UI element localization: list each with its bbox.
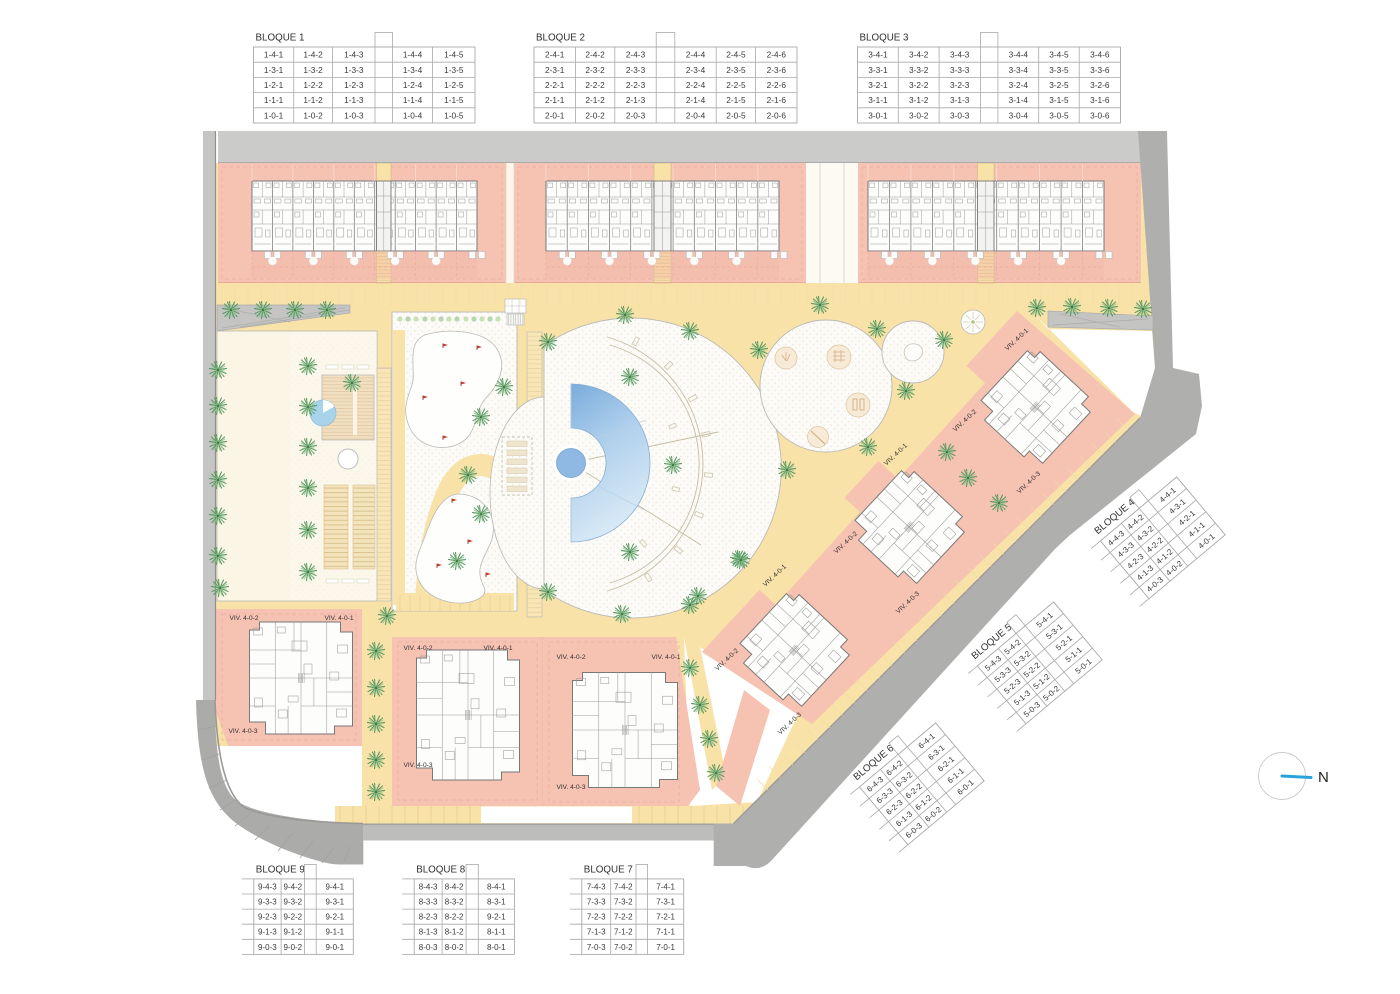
- svg-text:1-3-3: 1-3-3: [344, 65, 364, 75]
- svg-text:1-2-4: 1-2-4: [403, 80, 423, 90]
- svg-text:8-3-1: 8-3-1: [487, 898, 506, 907]
- svg-text:9-2-3: 9-2-3: [258, 913, 277, 922]
- svg-text:VIV. 4-0-1: VIV. 4-0-1: [651, 654, 680, 661]
- svg-text:VIV. 4-0-2: VIV. 4-0-2: [556, 654, 585, 661]
- svg-text:8-4-2: 8-4-2: [445, 882, 464, 891]
- svg-text:3-1-5: 3-1-5: [1049, 95, 1069, 105]
- svg-text:1-1-1: 1-1-1: [264, 95, 284, 105]
- svg-text:VIV. 4-0-2: VIV. 4-0-2: [403, 645, 432, 652]
- svg-text:7-1-1: 7-1-1: [656, 928, 675, 937]
- svg-text:3-1-4: 3-1-4: [1009, 95, 1029, 105]
- svg-text:1-0-5: 1-0-5: [444, 110, 464, 120]
- svg-text:7-4-3: 7-4-3: [587, 882, 606, 891]
- svg-text:3-0-5: 3-0-5: [1049, 110, 1069, 120]
- svg-text:2-2-4: 2-2-4: [686, 80, 706, 90]
- svg-text:1-4-3: 1-4-3: [344, 50, 364, 60]
- svg-text:N: N: [1318, 769, 1329, 786]
- svg-text:3-3-6: 3-3-6: [1090, 65, 1110, 75]
- svg-text:2-1-5: 2-1-5: [726, 95, 746, 105]
- svg-text:VIV. 4-0-1: VIV. 4-0-1: [483, 645, 512, 652]
- svg-text:3-3-3: 3-3-3: [950, 65, 970, 75]
- svg-text:8-2-3: 8-2-3: [419, 913, 438, 922]
- svg-text:2-4-3: 2-4-3: [626, 50, 646, 60]
- svg-text:2-2-3: 2-2-3: [626, 80, 646, 90]
- svg-text:1-2-5: 1-2-5: [444, 80, 464, 90]
- svg-text:9-2-2: 9-2-2: [283, 913, 302, 922]
- svg-text:7-2-3: 7-2-3: [587, 913, 606, 922]
- svg-text:3-0-2: 3-0-2: [909, 110, 929, 120]
- svg-text:7-0-3: 7-0-3: [587, 943, 606, 952]
- svg-text:1-3-5: 1-3-5: [444, 65, 464, 75]
- svg-text:2-2-1: 2-2-1: [545, 80, 565, 90]
- svg-text:8-4-1: 8-4-1: [487, 882, 506, 891]
- svg-text:BLOQUE 2: BLOQUE 2: [536, 33, 585, 44]
- svg-text:1-0-3: 1-0-3: [344, 110, 364, 120]
- svg-text:8-0-3: 8-0-3: [419, 943, 438, 952]
- svg-text:3-3-4: 3-3-4: [1009, 65, 1029, 75]
- svg-text:3-3-1: 3-3-1: [868, 65, 888, 75]
- svg-text:2-1-6: 2-1-6: [767, 95, 787, 105]
- svg-text:2-4-6: 2-4-6: [767, 50, 787, 60]
- svg-text:2-1-4: 2-1-4: [686, 95, 706, 105]
- svg-text:2-0-6: 2-0-6: [767, 110, 787, 120]
- svg-text:3-3-2: 3-3-2: [909, 65, 929, 75]
- svg-text:BLOQUE 7: BLOQUE 7: [584, 864, 633, 875]
- svg-text:2-1-1: 2-1-1: [545, 95, 565, 105]
- svg-text:9-2-1: 9-2-1: [325, 913, 344, 922]
- svg-text:2-2-2: 2-2-2: [585, 80, 605, 90]
- svg-text:9-4-1: 9-4-1: [325, 882, 344, 891]
- svg-text:3-1-3: 3-1-3: [950, 95, 970, 105]
- svg-text:8-2-2: 8-2-2: [445, 913, 464, 922]
- svg-text:3-4-5: 3-4-5: [1049, 50, 1069, 60]
- svg-text:2-4-2: 2-4-2: [585, 50, 605, 60]
- svg-text:2-3-5: 2-3-5: [726, 65, 746, 75]
- svg-text:8-1-3: 8-1-3: [419, 928, 438, 937]
- svg-text:9-4-3: 9-4-3: [258, 882, 277, 891]
- svg-text:7-2-1: 7-2-1: [656, 913, 675, 922]
- svg-text:9-2-1: 9-2-1: [487, 913, 506, 922]
- svg-text:3-2-3: 3-2-3: [950, 80, 970, 90]
- svg-text:3-0-1: 3-0-1: [868, 110, 888, 120]
- svg-text:9-0-1: 9-0-1: [325, 943, 344, 952]
- svg-text:7-4-2: 7-4-2: [614, 882, 633, 891]
- svg-text:2-0-2: 2-0-2: [585, 110, 605, 120]
- svg-text:3-2-1: 3-2-1: [868, 80, 888, 90]
- svg-text:1-3-1: 1-3-1: [264, 65, 284, 75]
- svg-text:2-3-4: 2-3-4: [686, 65, 706, 75]
- svg-text:8-3-2: 8-3-2: [445, 898, 464, 907]
- svg-text:1-1-2: 1-1-2: [303, 95, 323, 105]
- svg-text:9-0-2: 9-0-2: [283, 943, 302, 952]
- svg-text:7-3-1: 7-3-1: [656, 898, 675, 907]
- svg-text:2-0-3: 2-0-3: [626, 110, 646, 120]
- svg-text:VIV. 4-0-3: VIV. 4-0-3: [403, 762, 432, 769]
- svg-text:2-2-6: 2-2-6: [767, 80, 787, 90]
- svg-text:3-4-1: 3-4-1: [868, 50, 888, 60]
- svg-text:1-0-4: 1-0-4: [403, 110, 423, 120]
- svg-text:2-3-1: 2-3-1: [545, 65, 565, 75]
- svg-text:2-4-5: 2-4-5: [726, 50, 746, 60]
- svg-text:2-3-3: 2-3-3: [626, 65, 646, 75]
- svg-text:1-2-3: 1-2-3: [344, 80, 364, 90]
- svg-text:2-3-6: 2-3-6: [767, 65, 787, 75]
- svg-text:9-3-2: 9-3-2: [283, 898, 302, 907]
- svg-text:9-4-2: 9-4-2: [283, 882, 302, 891]
- svg-text:3-0-4: 3-0-4: [1009, 110, 1029, 120]
- svg-text:7-3-2: 7-3-2: [614, 898, 633, 907]
- svg-text:9-1-2: 9-1-2: [283, 928, 302, 937]
- svg-text:VIV. 4-0-2: VIV. 4-0-2: [229, 615, 258, 622]
- svg-text:2-4-1: 2-4-1: [545, 50, 565, 60]
- svg-text:2-1-3: 2-1-3: [626, 95, 646, 105]
- svg-text:1-2-1: 1-2-1: [264, 80, 284, 90]
- svg-text:VIV. 4-0-1: VIV. 4-0-1: [324, 615, 353, 622]
- svg-text:7-4-1: 7-4-1: [656, 882, 675, 891]
- svg-text:7-2-2: 7-2-2: [614, 913, 633, 922]
- svg-text:8-1-1: 8-1-1: [487, 928, 506, 937]
- svg-text:3-1-2: 3-1-2: [909, 95, 929, 105]
- svg-text:1-1-3: 1-1-3: [344, 95, 364, 105]
- svg-text:7-0-2: 7-0-2: [614, 943, 633, 952]
- svg-text:2-0-5: 2-0-5: [726, 110, 746, 120]
- svg-text:9-1-1: 9-1-1: [325, 928, 344, 937]
- svg-text:VIV. 4-0-3: VIV. 4-0-3: [228, 728, 257, 735]
- svg-text:7-1-3: 7-1-3: [587, 928, 606, 937]
- svg-text:1-4-2: 1-4-2: [303, 50, 323, 60]
- svg-text:8-1-2: 8-1-2: [445, 928, 464, 937]
- svg-text:9-3-3: 9-3-3: [258, 898, 277, 907]
- svg-text:2-0-4: 2-0-4: [686, 110, 706, 120]
- svg-text:1-4-4: 1-4-4: [403, 50, 423, 60]
- svg-text:7-1-2: 7-1-2: [614, 928, 633, 937]
- svg-text:9-1-3: 9-1-3: [258, 928, 277, 937]
- svg-text:7-0-1: 7-0-1: [656, 943, 675, 952]
- svg-text:2-2-5: 2-2-5: [726, 80, 746, 90]
- svg-text:3-1-1: 3-1-1: [868, 95, 888, 105]
- svg-text:8-0-2: 8-0-2: [445, 943, 464, 952]
- svg-text:3-0-6: 3-0-6: [1090, 110, 1110, 120]
- svg-text:BLOQUE 8: BLOQUE 8: [416, 864, 466, 875]
- svg-text:3-2-6: 3-2-6: [1090, 80, 1110, 90]
- svg-text:1-3-2: 1-3-2: [303, 65, 323, 75]
- svg-text:1-0-2: 1-0-2: [303, 110, 323, 120]
- svg-text:1-4-5: 1-4-5: [444, 50, 464, 60]
- svg-text:BLOQUE 3: BLOQUE 3: [860, 33, 910, 44]
- svg-text:BLOQUE 9: BLOQUE 9: [256, 864, 305, 875]
- svg-text:3-4-3: 3-4-3: [950, 50, 970, 60]
- svg-text:2-4-4: 2-4-4: [686, 50, 706, 60]
- svg-text:7-3-3: 7-3-3: [587, 898, 606, 907]
- svg-text:3-4-2: 3-4-2: [909, 50, 929, 60]
- svg-text:2-0-1: 2-0-1: [545, 110, 565, 120]
- svg-text:2-1-2: 2-1-2: [585, 95, 605, 105]
- svg-text:1-4-1: 1-4-1: [264, 50, 284, 60]
- svg-text:3-2-4: 3-2-4: [1009, 80, 1029, 90]
- svg-text:3-1-6: 3-1-6: [1090, 95, 1110, 105]
- svg-text:8-0-1: 8-0-1: [487, 943, 506, 952]
- svg-text:2-3-2: 2-3-2: [585, 65, 605, 75]
- svg-text:1-1-5: 1-1-5: [444, 95, 464, 105]
- svg-text:9-0-3: 9-0-3: [258, 943, 277, 952]
- svg-text:3-2-5: 3-2-5: [1049, 80, 1069, 90]
- svg-text:3-4-6: 3-4-6: [1090, 50, 1110, 60]
- svg-text:1-2-2: 1-2-2: [303, 80, 323, 90]
- svg-text:3-3-5: 3-3-5: [1049, 65, 1069, 75]
- svg-text:3-2-2: 3-2-2: [909, 80, 929, 90]
- svg-text:8-3-3: 8-3-3: [419, 898, 438, 907]
- svg-text:3-4-4: 3-4-4: [1009, 50, 1029, 60]
- svg-text:8-4-3: 8-4-3: [419, 882, 438, 891]
- svg-text:9-3-1: 9-3-1: [325, 898, 344, 907]
- svg-text:1-0-1: 1-0-1: [264, 110, 284, 120]
- svg-text:BLOQUE 1: BLOQUE 1: [256, 33, 305, 44]
- svg-text:1-3-4: 1-3-4: [403, 65, 423, 75]
- svg-text:1-1-4: 1-1-4: [403, 95, 423, 105]
- svg-text:VIV. 4-0-3: VIV. 4-0-3: [556, 784, 585, 791]
- svg-text:3-0-3: 3-0-3: [950, 110, 970, 120]
